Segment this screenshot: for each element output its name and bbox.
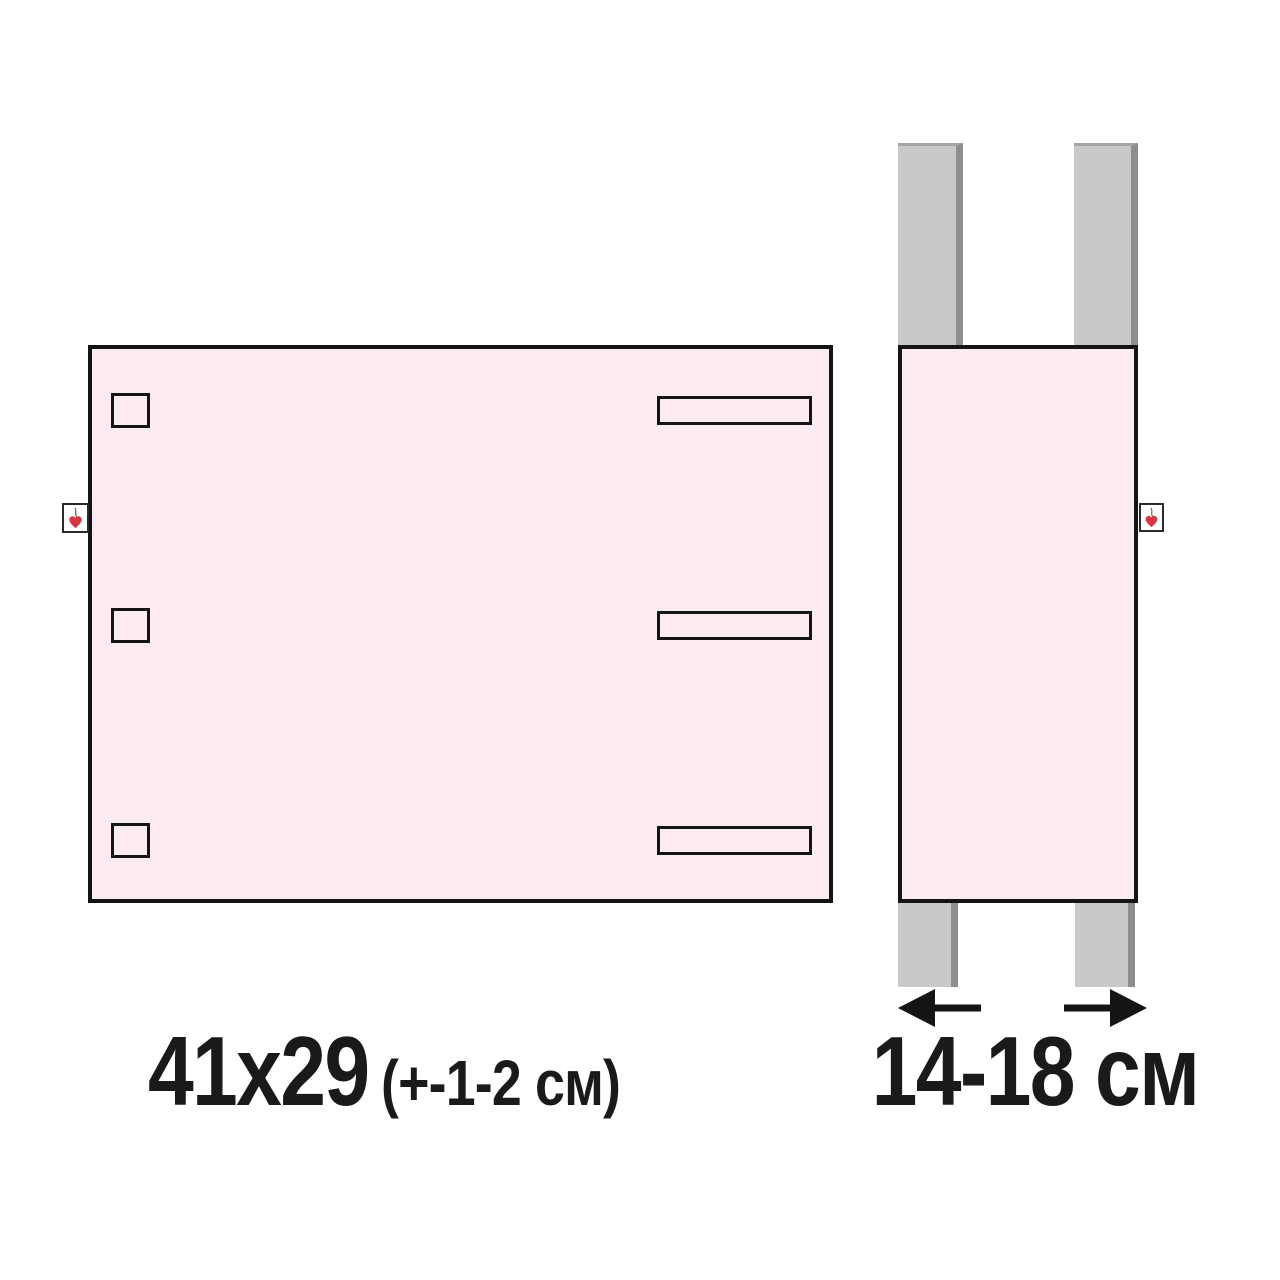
dimension-diagram: 41x29 (+-1-2 см) 14-18 см [0,0,1280,1280]
heart-sprout-icon [64,505,87,531]
side-panel [898,345,1138,903]
strap-width-value: 14-18 см [872,1022,1199,1120]
heart-sprout-icon [1141,505,1162,530]
strap-top-right [1074,143,1138,349]
side-size-label: 14-18 см [872,1022,1199,1120]
slot-top [657,396,812,425]
slot-middle [657,611,812,640]
front-size-value: 41x29 [148,1022,369,1120]
square-hole-bottom [111,823,150,858]
front-size-tolerance: (+-1-2 см) [381,1051,620,1115]
brand-tag-right [1139,503,1164,532]
strap-bottom-right [1075,899,1135,987]
front-panel [88,345,833,903]
brand-tag-left [62,503,89,533]
strap-bottom-left [898,899,958,987]
square-hole-middle [111,608,150,643]
front-size-label: 41x29 (+-1-2 см) [148,1022,620,1120]
square-hole-top [111,393,150,428]
strap-top-left [898,143,963,349]
slot-bottom [657,826,812,855]
